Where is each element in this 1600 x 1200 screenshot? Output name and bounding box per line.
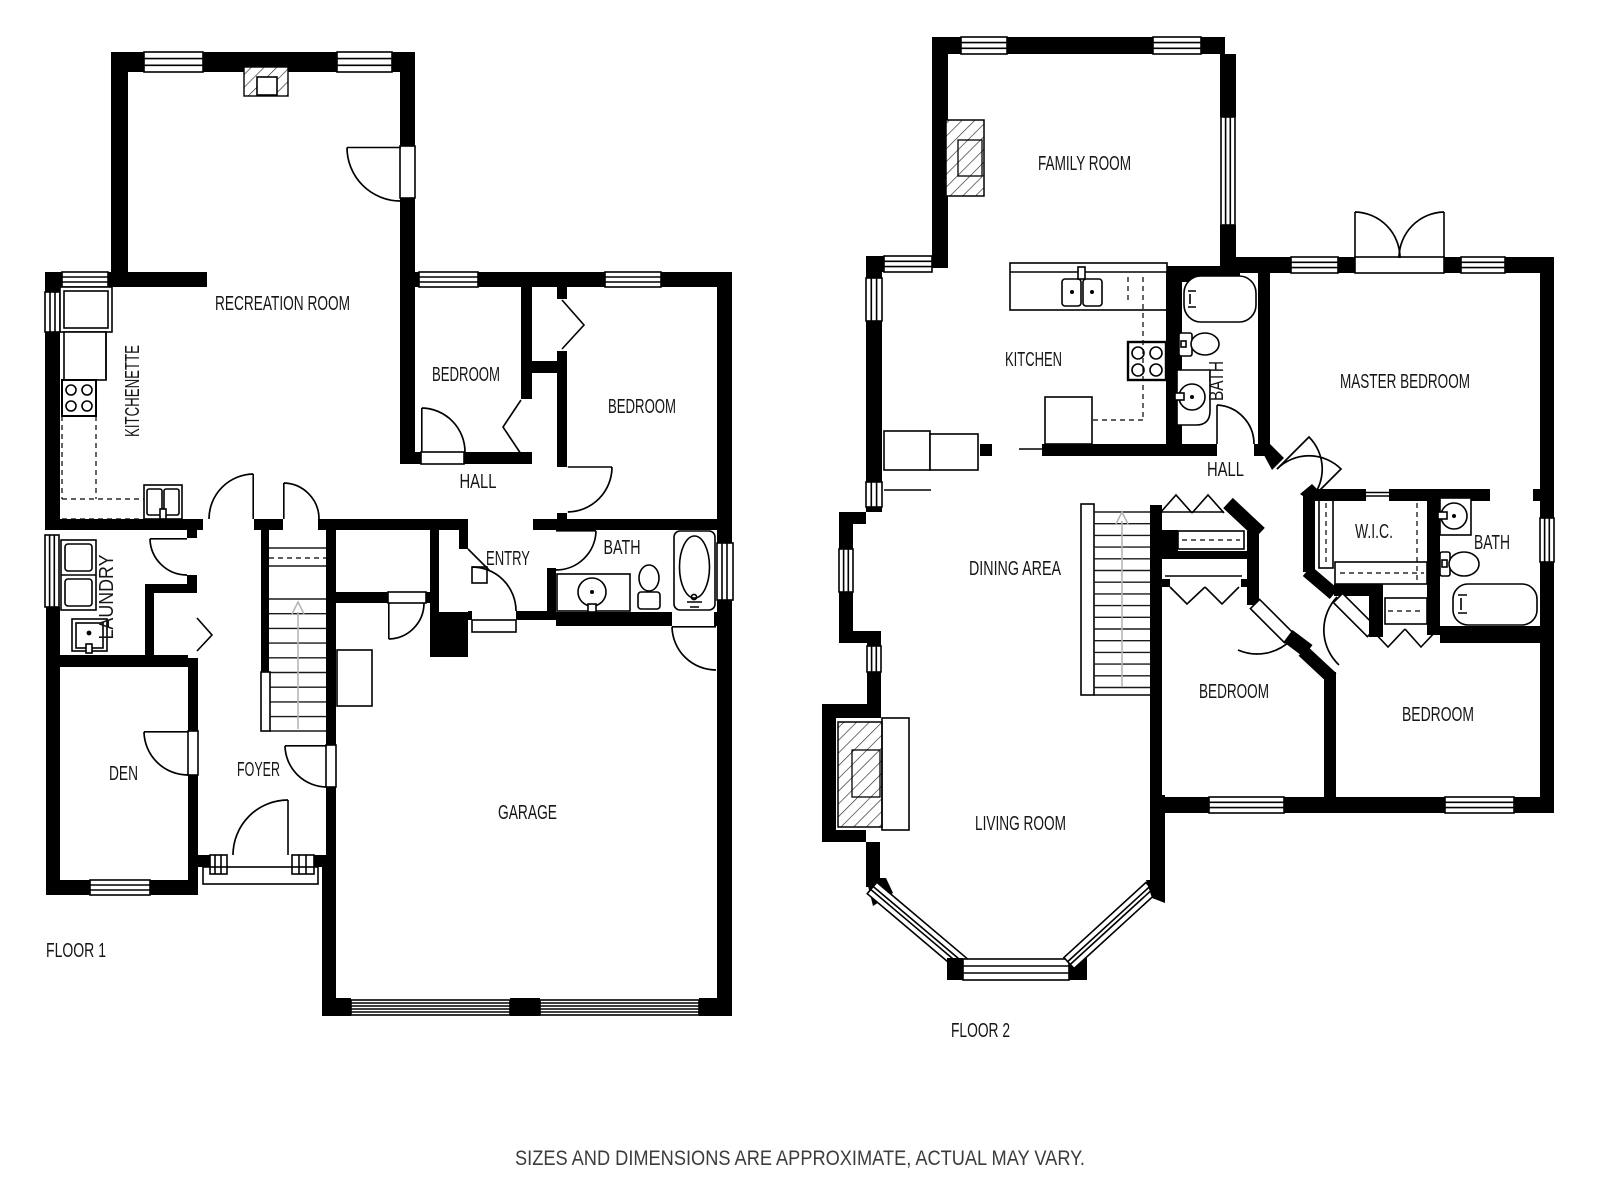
- svg-text:HALL: HALL: [1207, 459, 1244, 481]
- svg-text:KITCHEN: KITCHEN: [1005, 349, 1062, 371]
- svg-text:BATH: BATH: [604, 537, 641, 559]
- svg-text:DINING AREA: DINING AREA: [969, 558, 1061, 580]
- svg-text:FLOOR 2: FLOOR 2: [951, 1020, 1010, 1042]
- svg-text:BEDROOM: BEDROOM: [432, 364, 500, 386]
- svg-text:FOYER: FOYER: [237, 759, 280, 781]
- svg-text:ENTRY: ENTRY: [486, 548, 530, 570]
- svg-text:GARAGE: GARAGE: [498, 802, 557, 824]
- svg-text:BEDROOM: BEDROOM: [608, 396, 676, 418]
- svg-text:DEN: DEN: [109, 763, 138, 785]
- svg-text:KITCHENETTE: KITCHENETTE: [122, 345, 144, 437]
- svg-text:HALL: HALL: [460, 471, 497, 493]
- svg-text:LAUNDRY: LAUNDRY: [96, 555, 118, 640]
- svg-text:BATH: BATH: [1474, 532, 1510, 554]
- svg-text:SIZES AND DIMENSIONS ARE APPRO: SIZES AND DIMENSIONS ARE APPROXIMATE, AC…: [515, 1147, 1085, 1170]
- svg-text:RECREATION ROOM: RECREATION ROOM: [215, 293, 350, 315]
- svg-text:FAMILY ROOM: FAMILY ROOM: [1038, 153, 1131, 175]
- svg-text:LIVING ROOM: LIVING ROOM: [975, 813, 1066, 835]
- svg-text:MASTER BEDROOM: MASTER BEDROOM: [1340, 371, 1470, 393]
- svg-text:BEDROOM: BEDROOM: [1199, 681, 1269, 703]
- svg-text:BATH: BATH: [1206, 361, 1228, 401]
- svg-text:BEDROOM: BEDROOM: [1402, 704, 1474, 726]
- svg-text:W.I.C.: W.I.C.: [1355, 521, 1393, 543]
- svg-text:FLOOR 1: FLOOR 1: [46, 940, 106, 962]
